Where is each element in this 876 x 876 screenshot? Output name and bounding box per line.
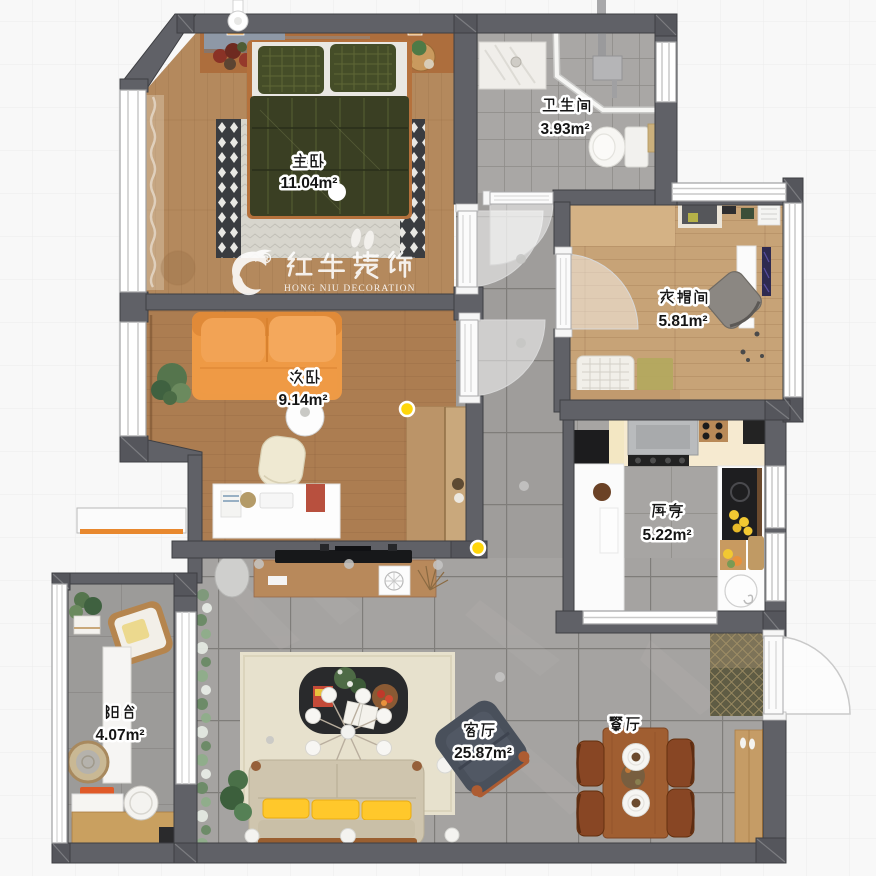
svg-text:25.87m²: 25.87m² (454, 745, 512, 762)
svg-text:5.81m²: 5.81m² (658, 313, 707, 330)
svg-text:9.14m²: 9.14m² (278, 392, 327, 409)
svg-text:5.22m²: 5.22m² (642, 527, 691, 544)
svg-text:11.04m²: 11.04m² (281, 175, 338, 192)
svg-text:4.07m²: 4.07m² (95, 727, 144, 744)
svg-text:3.93m²: 3.93m² (540, 121, 589, 138)
svg-text:HONG NIU DECORATION: HONG NIU DECORATION (284, 284, 416, 294)
